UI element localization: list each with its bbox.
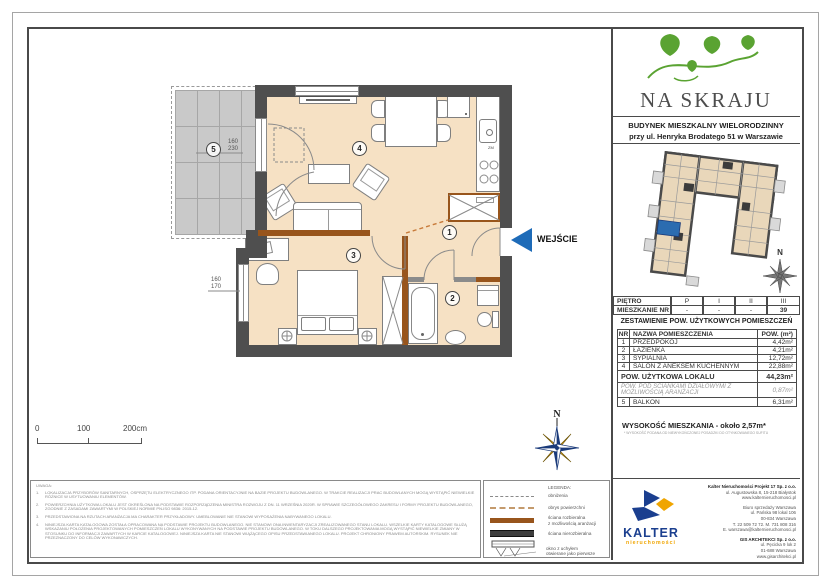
building-title: BUDYNEK MIESZKALNY WIELORODZINNY przy ul… — [613, 121, 799, 141]
wall-bottom — [236, 345, 512, 357]
wall-living-bedroom — [258, 230, 370, 236]
area-table-title: ZESTAWIENIE POW. UŻYTKOWYCH POMIESZCZEŃ — [613, 318, 800, 325]
company-addresses: Kalter Nieruchomości Projekt 17 Sp. z o.… — [686, 484, 796, 559]
room-number-balcony: 5 — [206, 142, 221, 157]
room-number-bathroom: 2 — [445, 291, 460, 306]
floor-plan-card: ZM — [0, 0, 830, 587]
room-number-hall: 1 — [442, 225, 457, 240]
kalter-sub: nieruchomości — [619, 540, 683, 546]
kalter-logo: KALTER nieruchomości — [619, 490, 683, 552]
bedroom-wardrobe — [382, 276, 404, 345]
notes-title: UWAGA: — [36, 484, 475, 489]
kitchen-sink — [479, 119, 497, 143]
legend-label-fixed-wall: ściana nierozbieralna — [548, 531, 591, 536]
wall-right-lower — [500, 256, 512, 357]
fridge — [447, 95, 470, 118]
sofa — [293, 202, 362, 233]
wall-top — [255, 85, 512, 97]
legend-swatch-removable-wall — [490, 518, 540, 523]
legend-title: LEGENDA: — [548, 485, 603, 490]
wall-bath-top-right — [476, 277, 500, 282]
legend-label-area-outline: obrys powierzchni — [548, 505, 585, 510]
toilet — [477, 312, 492, 327]
legend-label-lowered-ceiling: obniżenia — [548, 493, 568, 498]
area-partition-row: POW. POD ŚCIANKAMI DZIAŁOWYMI Z MOŻLIWOŚ… — [617, 382, 797, 398]
compass-rose: N — [526, 406, 588, 476]
legend-swatch-lowered-ceiling — [490, 496, 540, 497]
legend-swatch-fixed-wall — [490, 530, 540, 537]
dining-chair-4 — [437, 124, 451, 142]
bed — [297, 270, 358, 335]
washbasin — [445, 330, 466, 345]
right-panel-divider — [611, 27, 613, 560]
living-window — [295, 86, 359, 96]
note-1: LOKALIZACJA PRZYBORÓW SANITARNYCH, OSPRZ… — [45, 491, 475, 500]
dining-chair-2 — [371, 124, 385, 142]
pillow-right — [329, 317, 354, 331]
room-number-bedroom: 3 — [346, 248, 361, 263]
nightstand-left — [278, 328, 297, 345]
dishwasher-label: ZM — [488, 144, 494, 151]
coffee-table — [308, 164, 350, 184]
kalter-logo-yellow-diamond — [656, 498, 674, 511]
legend-box: LEGENDA: obniżenia obrys powierzchni ści… — [483, 480, 610, 558]
room-number-living: 4 — [352, 141, 367, 156]
bedroom-window-dimension: 160170 — [206, 277, 226, 291]
bathtub — [408, 283, 438, 344]
entrance-arrow-icon — [511, 228, 532, 252]
bedroom-window — [238, 264, 249, 322]
nightstand-right — [358, 328, 377, 345]
wall-bath-top-a — [408, 277, 424, 282]
floor-table: PIĘTRO P I II III MIESZKANIE NR - - - 39 — [613, 296, 800, 315]
desk-chair — [256, 263, 279, 285]
scale-bar: 0 100 200cm — [35, 424, 165, 446]
balcony — [175, 90, 262, 235]
wall-bath-top-b — [454, 277, 476, 282]
scale-200: 200cm — [123, 424, 147, 433]
legend-label-removable-wall-2: z możliwością aranżacji — [548, 521, 596, 526]
scale-0: 0 — [35, 424, 39, 433]
dining-chair-1 — [371, 100, 385, 118]
tv-bench — [299, 96, 357, 104]
wall-bedroom-hall — [402, 236, 408, 345]
apartment-row-label: MIESZKANIE NR — [613, 305, 671, 315]
legend-swatch-area-outline — [490, 507, 540, 509]
note-4: NINIEJSZA KARTA KATALOGOWA ZOSTAŁA OPRAC… — [45, 523, 475, 541]
wall-right-upper — [500, 85, 512, 228]
entrance-label: WEJŚCIE — [537, 234, 578, 244]
toilet-tank — [492, 311, 499, 328]
site-plan-compass: N — [758, 246, 802, 298]
site-compass-north-label: N — [777, 248, 783, 257]
apartment-height-footnote: * WYSOKOŚĆ PODANA OD NIEWYKOŃCZONEJ POSA… — [624, 431, 794, 435]
balcony-door-dimension: 160230 — [223, 139, 243, 153]
legend-swatch-window — [490, 540, 540, 560]
pillow-left — [301, 317, 326, 331]
site-plan-unit-highlight — [657, 220, 681, 237]
hall-wardrobe — [448, 193, 500, 222]
apartment-number: 39 — [767, 305, 800, 315]
ivy-logo — [640, 32, 770, 86]
kalter-logo-blue-bottom — [632, 507, 660, 521]
legend-label-window-2: otwierane jako pierwsze — [546, 551, 595, 556]
notes-box: UWAGA: 1.LOKALIZACJA PRZYBORÓW SANITARNY… — [30, 480, 481, 558]
logo-title: NA SKRAJU — [613, 88, 799, 113]
area-table: NR NAZWA POMIESZCZENIA POW. (m²) 1 PRZED… — [617, 329, 797, 407]
balcony-door — [255, 118, 267, 172]
dining-table — [385, 94, 437, 147]
apartment-height: WYSOKOŚĆ MIESZKANIA - około 2,57m* — [622, 421, 766, 430]
area-balcony-row: 5 BALKON 6,31m² — [617, 397, 797, 407]
note-3: PRZEDSTAWIONA NA RZUTACH ARANŻACJA MA CH… — [45, 515, 332, 520]
note-2: POWIERZCHNIA UŻYTKOWA LOKALU JEST OKREŚL… — [45, 503, 475, 512]
washing-machine — [477, 285, 499, 306]
scale-100: 100 — [77, 424, 90, 433]
kalter-wordmark: KALTER — [619, 526, 683, 540]
